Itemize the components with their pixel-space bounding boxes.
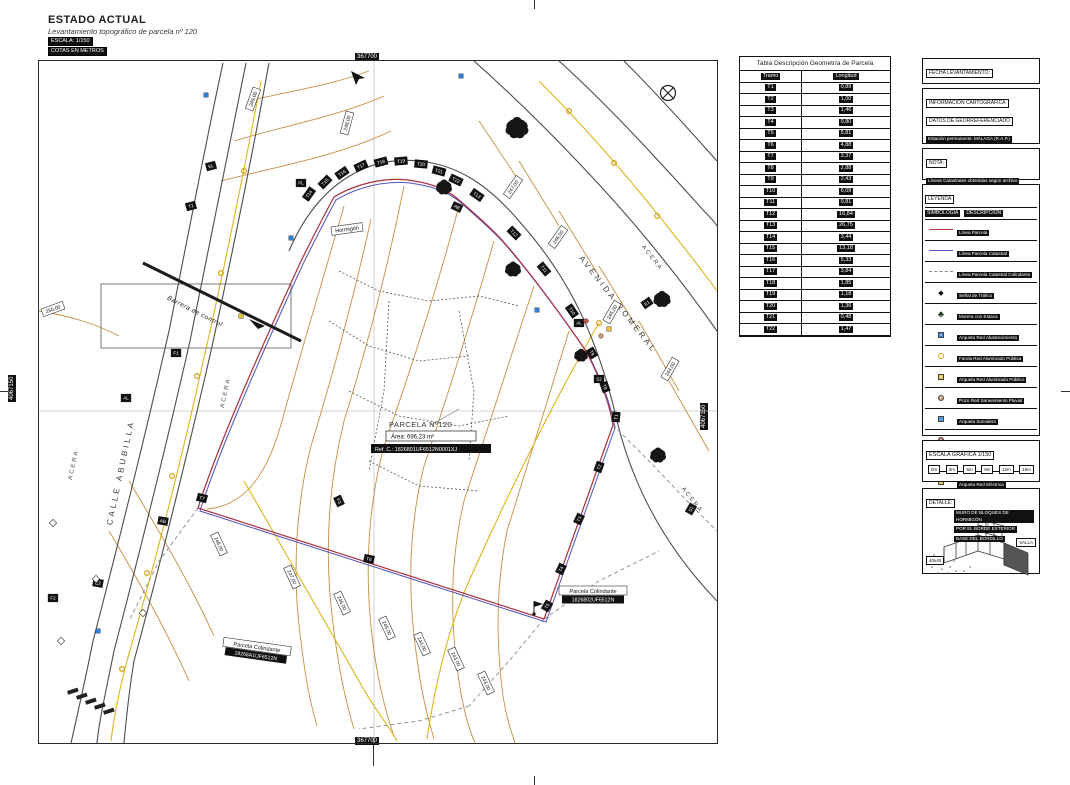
page-subtitle: Levantamiento topográfico de parcela nº … [48, 27, 197, 36]
crosswalk [67, 688, 115, 715]
svg-text:PL: PL [298, 181, 304, 186]
table-row: T40,80 [740, 117, 890, 129]
units-badge: COTAS EN METROS [48, 47, 107, 56]
scale-tick: 6m [963, 465, 975, 474]
contour-elevation-label: 248,00 [340, 111, 354, 135]
svg-text:F2: F2 [50, 596, 56, 601]
leyenda-columns: SIMBOLOGÍA DESCRIPCIÓN [925, 208, 1037, 220]
info-title-2: DATOS DE GEORREFERENCIADO [926, 117, 1013, 126]
utm-y-badge-left: 4067150 [8, 375, 16, 402]
utility-square-icon [204, 93, 208, 97]
line-symbol-icon [925, 271, 957, 272]
leyenda-col-simbologia: SIMBOLOGÍA [925, 210, 960, 217]
utility-circle-icon [170, 474, 175, 479]
title-block: ESTADO ACTUAL Levantamiento topográfico … [48, 14, 197, 56]
table-row: T1513,18 [740, 244, 890, 256]
tramo-label: T5 [541, 600, 552, 612]
map-frame: PARCELA Nº120 Área: 696,23 m² Ref. C.: 1… [38, 60, 718, 744]
diamond-icon [57, 637, 64, 644]
tramo-label: T20 [414, 160, 427, 169]
tree-icon [653, 291, 670, 307]
table-value: 1,18 [839, 291, 854, 298]
svg-text:T19: T19 [397, 158, 406, 164]
road-lines [71, 61, 717, 743]
legend-row: Línea Parcela Catastral [925, 241, 1037, 262]
legend-row: Arqueta Sumidero [925, 409, 1037, 430]
legend-row: Línea Parcela Catastral Colindante [925, 262, 1037, 283]
detalle-dim-label: 40x40 [926, 556, 944, 565]
table-value: 3,37 [839, 153, 854, 160]
parcel-name: PARCELA Nº120 [389, 420, 452, 429]
surface-label: Hormigón [331, 223, 363, 236]
tramo-label: T14 [302, 187, 315, 202]
svg-text:243,00: 243,00 [449, 651, 461, 668]
tramo-label: T19 [394, 157, 407, 166]
tramo-label: T11 [537, 262, 551, 277]
tramo-label: T21 [432, 166, 446, 177]
table-row: T106,09 [740, 186, 890, 198]
utility-code-label: S2 [594, 375, 604, 383]
scale-tick: 0m [928, 465, 940, 474]
page-title: ESTADO ACTUAL [48, 14, 197, 26]
line-symbol-icon [925, 250, 957, 251]
legend-row: Farola Red Alumbrado Pública [925, 346, 1037, 367]
table-value: T17 [764, 268, 777, 275]
detalle-annotation-line: POR EL BORDE EXTERIOR [954, 526, 1017, 533]
svg-text:F1: F1 [173, 351, 179, 356]
legend-row: Línea Parcela [925, 220, 1037, 241]
table-value: 4,88 [839, 142, 854, 149]
svg-text:246,00: 246,00 [335, 595, 347, 612]
utility-circle-icon [145, 571, 150, 576]
geometry-table-body: T10,89T21,00T31,46T40,80T55,81T64,88T73,… [740, 83, 890, 336]
col-longitud: Longitud [833, 73, 858, 80]
scale-tick: 3m [946, 465, 958, 474]
utility-circle-icon [599, 334, 604, 339]
svg-text:AL: AL [123, 396, 129, 401]
legend-label: Arqueta Sumidero [957, 409, 1037, 429]
tramo-label: T6 [363, 554, 374, 563]
table-value: T2 [765, 96, 775, 103]
plan-sheet: { "title": { "heading": "ESTADO ACTUAL",… [0, 0, 1070, 785]
tramo-label: T18 [374, 157, 388, 168]
tree-icon [505, 262, 521, 277]
utility-square-icon [535, 308, 539, 312]
parcel-boundary-catastral [200, 182, 615, 622]
contour-elevation-label: 246,00 [548, 225, 568, 248]
table-value: T4 [765, 119, 775, 126]
utility-code-label: PL [296, 179, 306, 187]
diamond-icon [49, 519, 56, 526]
nota-title: NOTA: [926, 159, 947, 168]
utility-code-label: F3 [334, 495, 345, 507]
tramo-label: T2 [594, 461, 604, 473]
table-value: T10 [764, 188, 777, 195]
sidewalk-label: ACERA [68, 449, 80, 480]
fold-mark-bottom [534, 776, 535, 785]
table-value: 1,00 [839, 96, 854, 103]
table-value: T19 [764, 291, 777, 298]
fold-mark-top [534, 0, 535, 9]
utility-square-icon [289, 236, 293, 240]
svg-text:245,00: 245,00 [380, 620, 392, 637]
panel-nota: NOTA: Líneas Catastrales obtenidas según… [922, 148, 1040, 180]
svg-text:T1: T1 [613, 414, 618, 420]
table-value: 5,33 [839, 257, 854, 264]
contour-elevation-label: 244,00 [661, 357, 679, 381]
escala-title: ESCALA GRÁFICA 1/150 [926, 451, 994, 460]
sign-symbol-icon: ◆ [925, 289, 957, 297]
table-value: T15 [764, 245, 777, 252]
contour-elevation-label: 248,00 [211, 532, 228, 556]
col-tramo: Tramo [761, 73, 781, 80]
svg-text:AB: AB [160, 518, 167, 524]
sidewalk-label: ACERA [220, 377, 232, 408]
table-value: 6,09 [839, 188, 854, 195]
tramo-label: T4 [556, 563, 567, 575]
legend-label: Farola Red Alumbrado Pública [957, 346, 1037, 366]
utility-code-label: EL [205, 161, 216, 171]
contour-elevation-label: 247,00 [503, 175, 523, 198]
legend-row: ♣Morera con Estaca [925, 304, 1037, 325]
site-plan: PARCELA Nº120 Área: 696,23 m² Ref. C.: 1… [39, 61, 717, 743]
table-value: 1,47 [839, 326, 854, 333]
table-value: 0,80 [839, 119, 854, 126]
scale-tick: 15m [1019, 465, 1034, 474]
legend-label: Arqueta Red Abastecimiento [957, 325, 1037, 345]
slope-lines [329, 271, 519, 491]
table-row: T110,81 [740, 198, 890, 210]
scale-tick: 12m [999, 465, 1014, 474]
contour-elevation-label: 243,00 [448, 647, 465, 671]
detalle-title: DETALLE: [926, 499, 955, 508]
table-value: 0,48 [839, 314, 854, 321]
table-row: T31,46 [740, 106, 890, 118]
leyenda-title: LEYENDA [925, 195, 954, 204]
tree-icon [436, 180, 452, 195]
utility-square-icon [239, 314, 243, 318]
legend-label: Línea Parcela [957, 220, 1037, 240]
sq-symbol-icon: A [925, 374, 957, 380]
tramo-label: T3 [574, 513, 585, 525]
table-row: T181,85 [740, 278, 890, 290]
parcel-ref: Ref. C.: 1826801UF6512N0001XJ [375, 447, 457, 453]
scale-badge: ESCALA: 1/150 [48, 37, 93, 46]
table-value: 1,46 [839, 107, 854, 114]
table-value: T9 [765, 176, 775, 183]
utility-square-icon [96, 629, 100, 633]
svg-text:248,00: 248,00 [212, 536, 224, 553]
table-value: 2,43 [839, 176, 854, 183]
svg-text:AL: AL [576, 321, 582, 326]
geometry-table: Tabla Descripción Geometría de Parcela T… [739, 56, 891, 337]
utility-circle-icon [120, 667, 125, 672]
panel-fecha: FECHA LEVANTAMIENTO: 1 de JULIO de 2025 [922, 58, 1040, 84]
geometry-table-header: Tramo Longitud [740, 71, 890, 83]
table-row: T191,18 [740, 290, 890, 302]
utility-code-label: T1 [185, 201, 196, 211]
circ-symbol-icon: P [925, 395, 957, 401]
panel-column: FECHA LEVANTAMIENTO: 1 de JULIO de 2025 … [922, 56, 1040, 772]
panel-leyenda: LEYENDA SIMBOLOGÍA DESCRIPCIÓN Línea Par… [922, 184, 1040, 436]
table-value: T3 [765, 107, 775, 114]
info-line: Estación permanente: MÁLAGA (R.A.P.) [926, 136, 1012, 143]
fold-mark-right [1061, 391, 1070, 392]
tree-symbol-icon: ♣ [925, 309, 957, 319]
contour-elevation-label: 245,00 [379, 616, 396, 640]
table-row: T82,88 [740, 163, 890, 175]
table-row: T10,89 [740, 83, 890, 95]
info-title-1: INFORMACIÓN CARTOGRÁFICA [926, 99, 1009, 108]
legend-label: Arqueta Red Alumbrado Público [957, 367, 1037, 387]
panel-escala-grafica: ESCALA GRÁFICA 1/150 0m3m6m9m12m15m [922, 440, 1040, 482]
utility-code-label: AB [158, 516, 169, 525]
table-row: T21,00 [740, 94, 890, 106]
table-row: T64,88 [740, 140, 890, 152]
fecha-title: FECHA LEVANTAMIENTO: [926, 69, 993, 78]
legend-label: Señal de Tráfico [957, 283, 1037, 303]
neighbor-parcel-label: Parcela Colindante1826802UF6512N [559, 586, 627, 604]
utility-square-icon [459, 74, 463, 78]
table-row: T221,47 [740, 324, 890, 336]
tramo-label: T1 [612, 412, 620, 422]
table-row: T210,48 [740, 313, 890, 325]
contour-elevation-label: 243,00 [478, 671, 495, 695]
svg-text:S2: S2 [596, 377, 602, 382]
legend-row: ◆Señal de Tráfico [925, 283, 1037, 304]
table-value: 2,88 [839, 165, 854, 172]
sq-symbol-icon [925, 416, 957, 422]
info-line: Estación permanente: MÁLAGA (R.A.P.) [926, 127, 1036, 145]
scale-tick: 9m [981, 465, 993, 474]
utility-square-icon [607, 327, 611, 331]
table-row: T1326,75 [740, 221, 890, 233]
table-row: T73,37 [740, 152, 890, 164]
generated-map-labels: CALLE ABUBILLAAVENIDA ROMERALACERAACERAA… [41, 74, 704, 695]
table-value: 1,36 [839, 303, 854, 310]
table-row: T143,44 [740, 232, 890, 244]
circ-symbol-icon [925, 353, 957, 359]
sidewalk-label: ACERA [640, 244, 664, 272]
contour-elevation-label: 247,00 [284, 565, 301, 589]
table-value: 13,18 [837, 245, 855, 252]
svg-text:243,00: 243,00 [479, 675, 491, 692]
table-value: T1 [765, 84, 775, 91]
table-value: 5,81 [839, 130, 854, 137]
geometry-table-title: Tabla Descripción Geometría de Parcela [740, 57, 890, 71]
legend-row: PPozo Red Saneamiento Pluvial [925, 388, 1037, 409]
table-row: T92,43 [740, 175, 890, 187]
table-row: T1216,84 [740, 209, 890, 221]
table-value: T11 [764, 199, 777, 206]
legend-label: Línea Parcela Catastral Colindante [957, 262, 1037, 282]
contour-elevation-label: 250,00 [41, 301, 65, 316]
table-value: T16 [764, 257, 777, 264]
tramo-label: T17 [354, 160, 369, 172]
table-row: T165,33 [740, 255, 890, 267]
table-value: T18 [764, 280, 777, 287]
table-value: T13 [764, 222, 777, 229]
tramo-label: T12 [507, 226, 521, 240]
detalle-valla-label: VALLA [1016, 538, 1036, 547]
detalle-annotation-line: MURO DE BLOQUES DE HORMIGÓN [954, 509, 1034, 523]
utility-code-label: F1 [171, 349, 181, 357]
detalle-annotation-line: BASE DEL BORDILLO [954, 536, 1005, 543]
leyenda-col-descripcion: DESCRIPCIÓN [964, 210, 1003, 217]
table-value: 0,89 [839, 84, 854, 91]
street-name-label: CALLE ABUBILLA [105, 419, 136, 526]
legend-label: Morera con Estaca [957, 304, 1037, 324]
sq-symbol-icon: A [925, 332, 957, 338]
table-row: T173,84 [740, 267, 890, 279]
contour-elevation-label: 246,00 [334, 591, 351, 615]
utility-code-label: F2 [48, 594, 58, 602]
grid-extension-mark [373, 742, 374, 766]
svg-text:Parcela Colindante: Parcela Colindante [569, 589, 616, 595]
table-value: T20 [764, 303, 777, 310]
parcel-area: Área: 696,23 m² [391, 434, 434, 441]
legend-row: AArqueta Red Abastecimiento [925, 325, 1037, 346]
table-value: T22 [764, 326, 777, 333]
table-row: T55,81 [740, 129, 890, 141]
table-value: T5 [765, 130, 775, 137]
panel-detalle: DETALLE: MURO DE BLO [922, 488, 1040, 574]
svg-text:244,00: 244,00 [415, 636, 427, 653]
svg-text:244,00: 244,00 [664, 361, 677, 377]
line-symbol-icon [925, 229, 957, 230]
utility-circle-icon [584, 319, 589, 324]
tramo-label: T15 [318, 175, 332, 189]
parcel-label: PARCELA Nº120 Área: 696,23 m² Ref. C.: 1… [371, 409, 491, 453]
legend-label: Pozo Red Saneamiento Pluvial [957, 388, 1037, 408]
scale-bar: 0m3m6m9m12m15m [926, 465, 1036, 476]
table-value: T7 [765, 153, 775, 160]
table-row: T201,36 [740, 301, 890, 313]
tramo-label: T13 [470, 188, 485, 201]
tree-icon [506, 117, 529, 138]
table-value: T14 [764, 234, 777, 241]
tree-icon [650, 448, 666, 463]
table-value: 1,85 [839, 280, 854, 287]
svg-text:245,00: 245,00 [606, 304, 619, 320]
table-value: T6 [765, 142, 775, 149]
station-mark-icon [661, 86, 676, 101]
panel-info-cartografica: INFORMACIÓN CARTOGRÁFICA DATOS DE GEORRE… [922, 88, 1040, 144]
table-value: T21 [764, 314, 777, 321]
tramo-label: T7 [196, 493, 207, 503]
table-value: T8 [765, 165, 775, 172]
utility-code-label: AL [574, 319, 584, 327]
table-value: T12 [764, 211, 777, 218]
table-value: 0,81 [839, 199, 854, 206]
svg-text:T20: T20 [417, 161, 426, 167]
utility-circle-icon [195, 374, 200, 379]
legend-row: AArqueta Red Alumbrado Público [925, 367, 1037, 388]
table-value: 16,84 [837, 211, 855, 218]
detalle-annotation-line: MURO DE BLOQUES DE HORMIGÓN [954, 510, 1034, 523]
table-value: 3,44 [839, 234, 854, 241]
utility-code-label: E1 [641, 297, 653, 309]
table-value: 3,84 [839, 268, 854, 275]
legend-label: Línea Parcela Catastral [957, 241, 1037, 261]
table-value: 26,75 [837, 222, 855, 229]
neighbor-parcel-label: Parcela Colindante18268A1UF6512N [222, 637, 292, 664]
utility-code-label: AL [121, 394, 131, 402]
svg-text:1826802UF6512N: 1826802UF6512N [572, 598, 615, 604]
